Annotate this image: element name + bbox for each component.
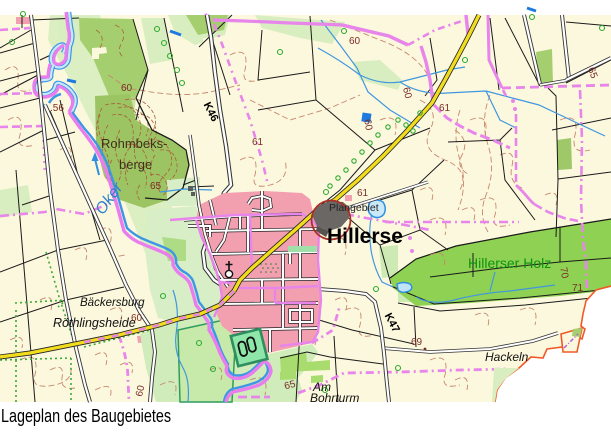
svg-text:60: 60 — [131, 313, 143, 324]
svg-text:.56: .56 — [50, 103, 64, 114]
svg-text:71: 71 — [572, 283, 584, 294]
svg-text:Bäckersburg: Bäckersburg — [80, 297, 145, 309]
svg-text:Lageplan des Baugebietes: Lageplan des Baugebietes — [1, 406, 171, 426]
svg-text:berge: berge — [119, 157, 152, 172]
svg-text:Bohrturm: Bohrturm — [310, 391, 359, 405]
svg-text:61: 61 — [439, 103, 451, 114]
svg-text:Hillerse: Hillerse — [327, 225, 403, 248]
svg-text:Hillerser Holz: Hillerser Holz — [468, 255, 551, 271]
svg-text:Röthlingsheide: Röthlingsheide — [53, 316, 136, 330]
svg-text:Rohmbeks-: Rohmbeks- — [101, 136, 167, 151]
svg-text:60: 60 — [349, 36, 361, 47]
svg-text:65: 65 — [150, 181, 162, 192]
svg-text:Plangebiet: Plangebiet — [329, 202, 379, 214]
svg-text:61: 61 — [252, 137, 264, 148]
svg-text:69: 69 — [411, 337, 423, 348]
svg-text:60: 60 — [121, 83, 133, 94]
svg-text:61: 61 — [357, 188, 369, 199]
svg-text:Hackeln: Hackeln — [485, 350, 529, 364]
